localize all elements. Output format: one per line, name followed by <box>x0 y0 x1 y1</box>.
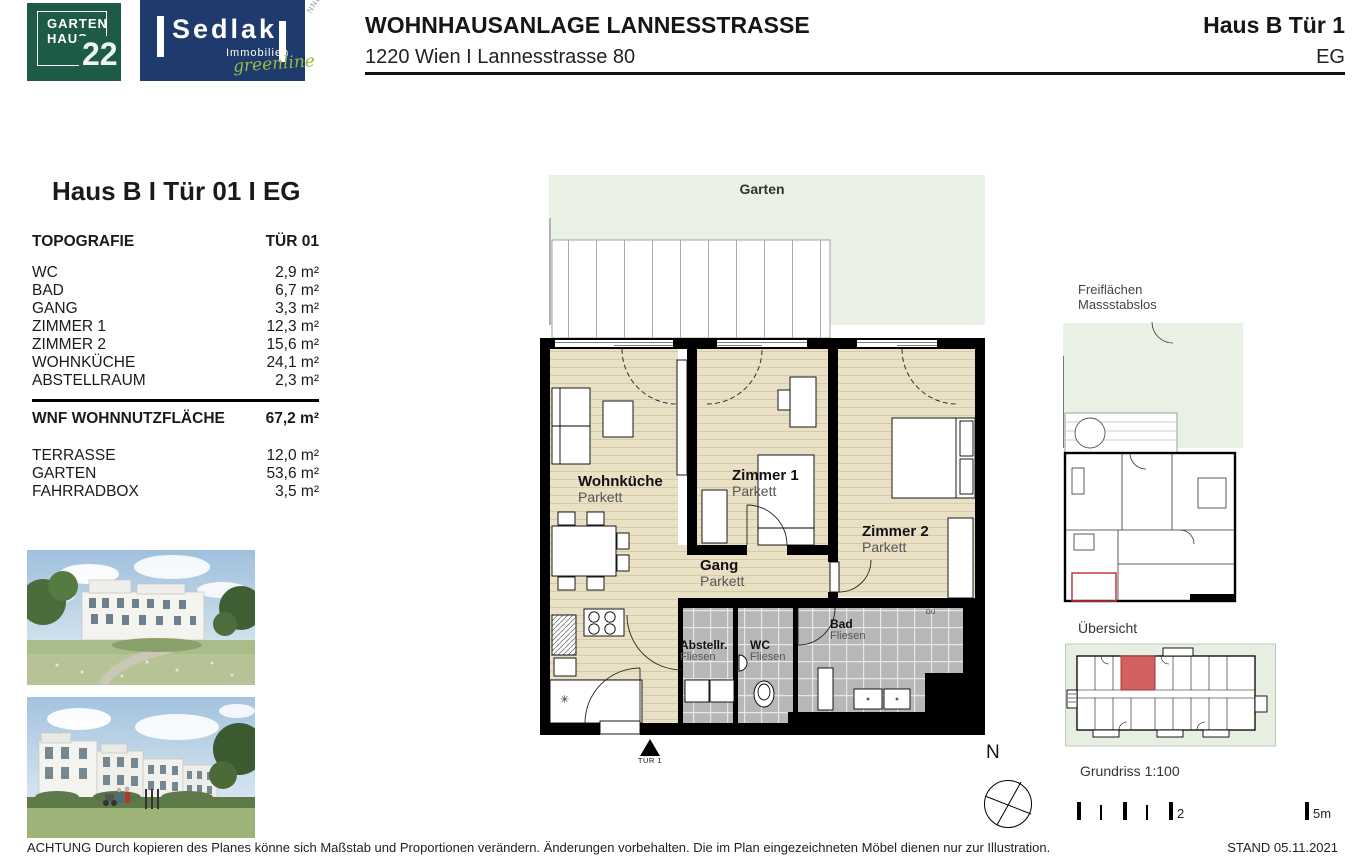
scale-tick <box>1169 802 1173 820</box>
building-rendering-photo-2 <box>27 697 255 838</box>
table-rule <box>32 399 319 402</box>
unit-heading: Haus B I Tür 01 I EG <box>52 176 301 207</box>
chair <box>558 577 575 590</box>
room-label-gang: Gang Parkett <box>700 558 744 589</box>
room-label-zimmer2: Zimmer 2 Parkett <box>862 524 929 555</box>
chair <box>587 577 604 590</box>
toilet <box>754 681 774 707</box>
dining-table <box>552 526 616 576</box>
pillow <box>960 421 973 456</box>
table-row: FAHRRADBOX 3,5 m² <box>32 483 319 501</box>
uebersicht-building-plan <box>1065 638 1277 748</box>
logo-sedlak-tagline: greenline <box>232 51 315 77</box>
table-row: TERRASSE 12,0 m² <box>32 447 319 465</box>
cabinet <box>677 360 687 475</box>
area-table-header: TOPOGRAFIE TÜR 01 <box>32 233 319 251</box>
scale-label-2: 2 <box>1177 806 1184 821</box>
unit-floor: EG <box>1316 46 1345 69</box>
freiflaechen-label: Freiflächen Massstabslos <box>1078 283 1157 313</box>
table-row: GANG 3,3 m² <box>32 300 319 318</box>
garden-label: Garten <box>702 182 822 197</box>
project-title: WOHNHAUSANLAGE LANNESSTRASSE <box>365 12 810 39</box>
room-area: 12,3 m² <box>266 318 319 336</box>
scale-tick <box>1123 802 1127 820</box>
logo-bar-left <box>157 16 164 57</box>
room-label: WOHNKÜCHE <box>32 354 135 372</box>
compass-icon <box>981 777 1035 831</box>
windows <box>555 340 937 347</box>
room-label: BAD <box>32 282 64 300</box>
total-area: 67,2 m² <box>266 410 319 428</box>
chair <box>617 533 629 549</box>
main-floorplan: DU ✳ Garten Wohnküche Parkett Zimmer 1 P… <box>540 168 1000 780</box>
logo-number-22: 22 <box>79 36 121 73</box>
room-label: GARTEN <box>32 465 96 483</box>
wardrobe <box>948 518 973 598</box>
kitchen-cabinet <box>554 658 576 676</box>
table-row: ZIMMER 1 12,3 m² <box>32 318 319 336</box>
col-topografie: TOPOGRAFIE <box>32 233 134 251</box>
terrace-decking <box>552 240 830 338</box>
chair <box>558 512 575 525</box>
room-label-zimmer1: Zimmer 1 Parkett <box>732 468 799 499</box>
building-rendering-photo-1 <box>27 550 255 685</box>
room-area: 2,3 m² <box>275 372 319 390</box>
table-row: WC 2,9 m² <box>32 264 319 282</box>
scale-tick <box>1077 802 1081 820</box>
chair <box>587 512 604 525</box>
room-label-abstellraum: Abstellr. Fliesen <box>680 639 727 664</box>
entry-door-leaf <box>600 721 640 734</box>
project-address: 1220 Wien I Lannesstrasse 80 <box>365 46 635 69</box>
room-label-wohnkueche: Wohnküche Parkett <box>578 474 663 505</box>
room-area: 6,7 m² <box>275 282 319 300</box>
room-label: ZIMMER 1 <box>32 318 106 336</box>
scale-tick <box>1100 805 1102 820</box>
footer-date-stand: STAND 05.11.2021 <box>1227 840 1338 855</box>
header-rule <box>365 72 1345 75</box>
desk <box>790 377 816 427</box>
zimmer2-door-leaf <box>830 562 839 592</box>
coffee-table <box>603 401 633 437</box>
table-row: GARTEN 53,6 m² <box>32 465 319 483</box>
room-area: 24,1 m² <box>266 354 319 372</box>
scale-label-5m: 5m <box>1313 806 1331 821</box>
logo-sedlak-name: Sedlak <box>172 14 277 45</box>
entry-marker-triangle <box>640 739 660 756</box>
room-area: 53,6 m² <box>266 465 319 483</box>
table-row: WOHNKÜCHE 24,1 m² <box>32 354 319 372</box>
compass-north-label: N <box>986 742 1000 764</box>
room-label: WC <box>32 264 58 282</box>
room-label-bad: Bad Fliesen <box>830 618 865 643</box>
room-area: 3,5 m² <box>275 483 319 501</box>
floorplan-document: { "header": { "project_title": "WOHNHAUS… <box>0 0 1364 863</box>
room-label: ABSTELLRAUM <box>32 372 146 390</box>
table-row: BAD 6,7 m² <box>32 282 319 300</box>
highlighted-unit <box>1121 656 1155 690</box>
gartenhaus-22-logo: GARTEN HAUS 22 <box>27 3 121 81</box>
pillow <box>960 459 973 494</box>
col-tuer: TÜR 01 <box>266 233 319 251</box>
room-area: 2,9 m² <box>275 264 319 282</box>
uebersicht-label: Übersicht <box>1078 620 1137 636</box>
sedlak-logo: Sedlak Immobilien greenline <box>140 0 305 81</box>
abstellraum-floor <box>683 608 733 725</box>
fridge-symbol: ✳ <box>560 694 569 706</box>
freiflaechen-mini-plan <box>1060 318 1248 613</box>
desk-chair <box>778 390 790 410</box>
total-label: WNF WOHNNUTZFLÄCHE <box>32 410 225 428</box>
room-label: TERRASSE <box>32 447 116 465</box>
room-label: FAHRRADBOX <box>32 483 139 501</box>
logo-word-garten: GARTEN <box>47 16 108 31</box>
chair <box>617 555 629 571</box>
kitchen-sink-unit <box>552 615 576 655</box>
room-label: ZIMMER 2 <box>32 336 106 354</box>
scale-tick <box>1146 805 1148 820</box>
room-area: 3,3 m² <box>275 300 319 318</box>
room-label: GANG <box>32 300 78 318</box>
table-row: ZIMMER 2 15,6 m² <box>32 336 319 354</box>
room-area: 12,0 m² <box>266 447 319 465</box>
dresser <box>702 490 727 543</box>
entry-door-label: TÜR 1 <box>622 757 678 765</box>
unit-title: Haus B Tür 1 <box>1203 12 1345 39</box>
duct-label: DU <box>926 609 936 616</box>
rotated-stamp-text: NNECT <box>305 0 330 15</box>
footer-disclaimer: ACHTUNG Durch kopieren des Planes könne … <box>27 840 1050 855</box>
table-row: ABSTELLRAUM 2,3 m² <box>32 372 319 390</box>
scale-bar: 2 5m <box>1077 800 1337 822</box>
room-area: 15,6 m² <box>266 336 319 354</box>
scale-title: Grundriss 1:100 <box>1080 763 1180 779</box>
shower-partition <box>818 668 833 710</box>
washer <box>685 680 709 702</box>
dryer <box>710 680 734 702</box>
total-row: WNF WOHNNUTZFLÄCHE 67,2 m² <box>32 410 319 428</box>
scale-tick <box>1305 802 1309 820</box>
area-table: TOPOGRAFIE TÜR 01 WC 2,9 m² BAD 6,7 m² G… <box>32 233 319 501</box>
room-label-wc: WC Fliesen <box>750 639 785 664</box>
